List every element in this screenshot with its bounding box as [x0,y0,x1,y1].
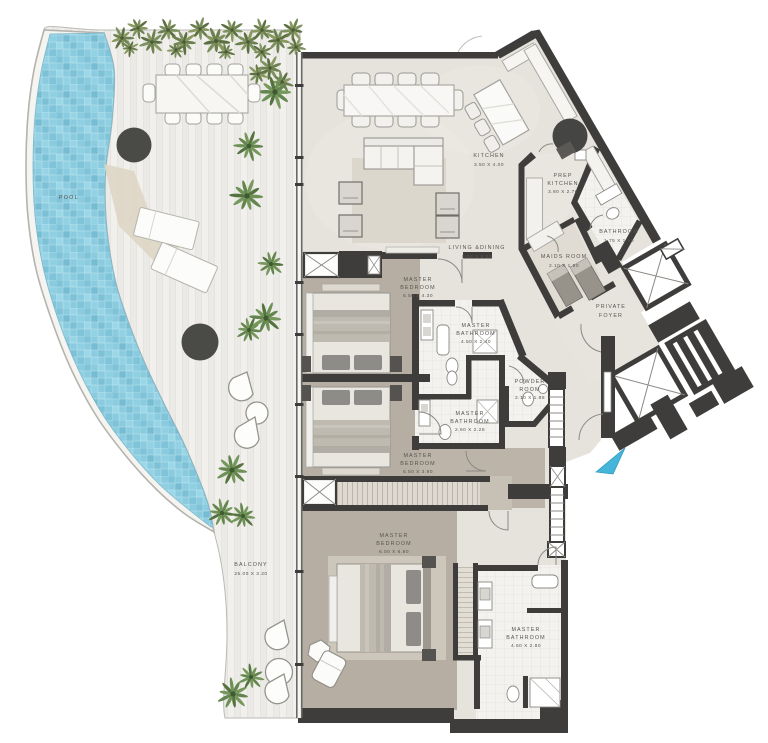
svg-text:BEDROOM: BEDROOM [400,285,436,291]
svg-text:BEDROOM: BEDROOM [376,541,412,547]
svg-text:BATHROOM: BATHROOM [450,419,490,425]
svg-text:5.50 X 4.30: 5.50 X 4.30 [403,293,433,299]
svg-text:MASTER: MASTER [461,323,490,329]
svg-text:PRIVATE: PRIVATE [596,304,626,310]
svg-text:LIVING &DINING: LIVING &DINING [448,245,505,251]
svg-text:BATHROOM: BATHROOM [506,635,546,641]
svg-text:3.50 X 4.00: 3.50 X 4.00 [474,162,504,168]
svg-text:3.80 X 2.70: 3.80 X 2.70 [548,189,578,195]
svg-text:POOL: POOL [59,195,79,201]
svg-text:MASTER: MASTER [511,627,540,633]
svg-text:8.80 X 8.00: 8.80 X 8.00 [462,254,492,260]
svg-text:KITCHEN: KITCHEN [547,181,578,187]
svg-text:MASTER: MASTER [403,277,432,283]
svg-text:BALCONY: BALCONY [234,562,267,568]
svg-text:25.00 X 3.20: 25.00 X 3.20 [234,571,267,577]
svg-text:KITCHEN: KITCHEN [473,153,504,159]
svg-text:1.75 X 1.50: 1.75 X 1.50 [604,238,634,244]
svg-text:POWDER: POWDER [515,379,546,385]
svg-text:BATHROOM: BATHROOM [456,331,496,337]
svg-text:5.50 X 3.90: 5.50 X 3.90 [403,469,433,475]
svg-text:2.10 X 1.86: 2.10 X 1.86 [515,395,545,401]
svg-text:MASTER: MASTER [403,453,432,459]
svg-text:MAIDS ROOM: MAIDS ROOM [541,254,587,260]
svg-text:ROOM: ROOM [519,387,540,393]
svg-text:FOYER: FOYER [599,313,623,319]
svg-text:BEDROOM: BEDROOM [400,461,436,467]
svg-text:PREP: PREP [553,173,572,179]
svg-text:2.60 X 2.28: 2.60 X 2.28 [455,427,485,433]
svg-text:4.50 X 2.40: 4.50 X 2.40 [461,339,491,345]
svg-text:2.10 X 1.50: 2.10 X 1.50 [549,263,579,269]
svg-text:MASTER: MASTER [455,411,484,417]
svg-text:BATHROOM: BATHROOM [599,229,639,235]
svg-text:MASTER: MASTER [379,533,408,539]
svg-text:6.00 X 6.80: 6.00 X 6.80 [379,549,409,555]
svg-text:4.60 X 2.80: 4.60 X 2.80 [511,643,541,649]
